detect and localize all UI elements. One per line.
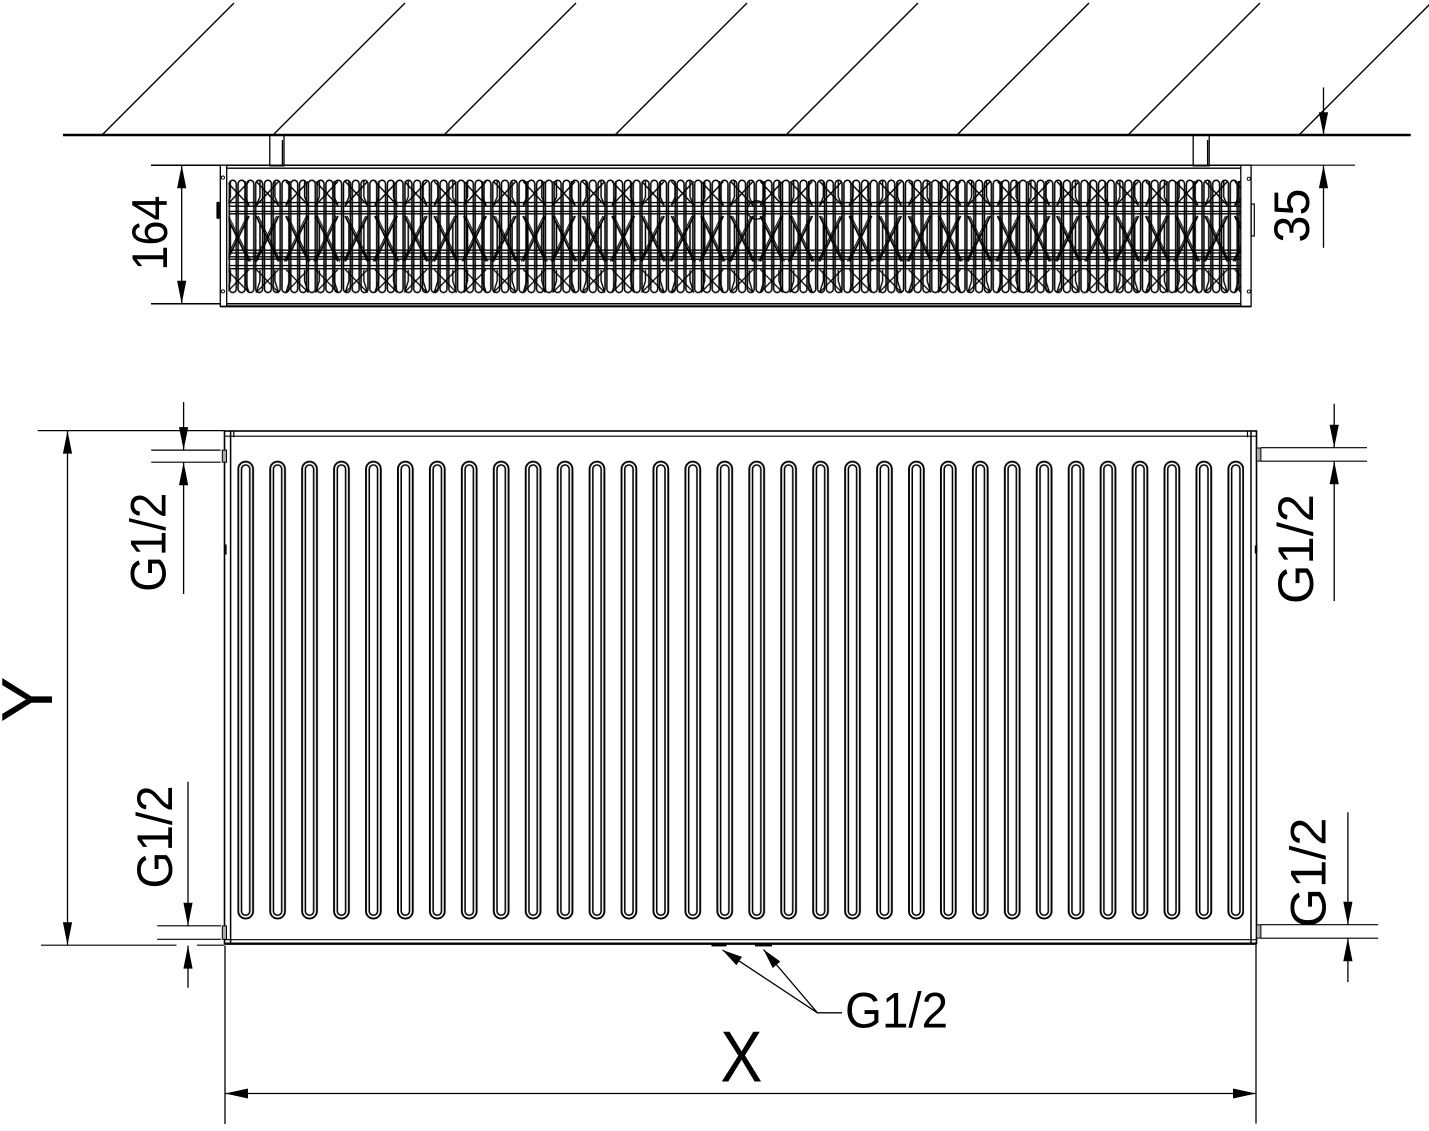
svg-text:G1/2: G1/2 [845,983,948,1039]
svg-text:Y: Y [0,677,68,723]
svg-text:G1/2: G1/2 [1281,818,1337,928]
svg-text:G1/2: G1/2 [127,786,183,889]
svg-text:164: 164 [122,196,178,271]
svg-text:X: X [720,1017,762,1097]
svg-text:G1/2: G1/2 [1268,494,1324,604]
svg-text:35: 35 [1264,189,1320,243]
svg-text:G1/2: G1/2 [121,493,177,592]
